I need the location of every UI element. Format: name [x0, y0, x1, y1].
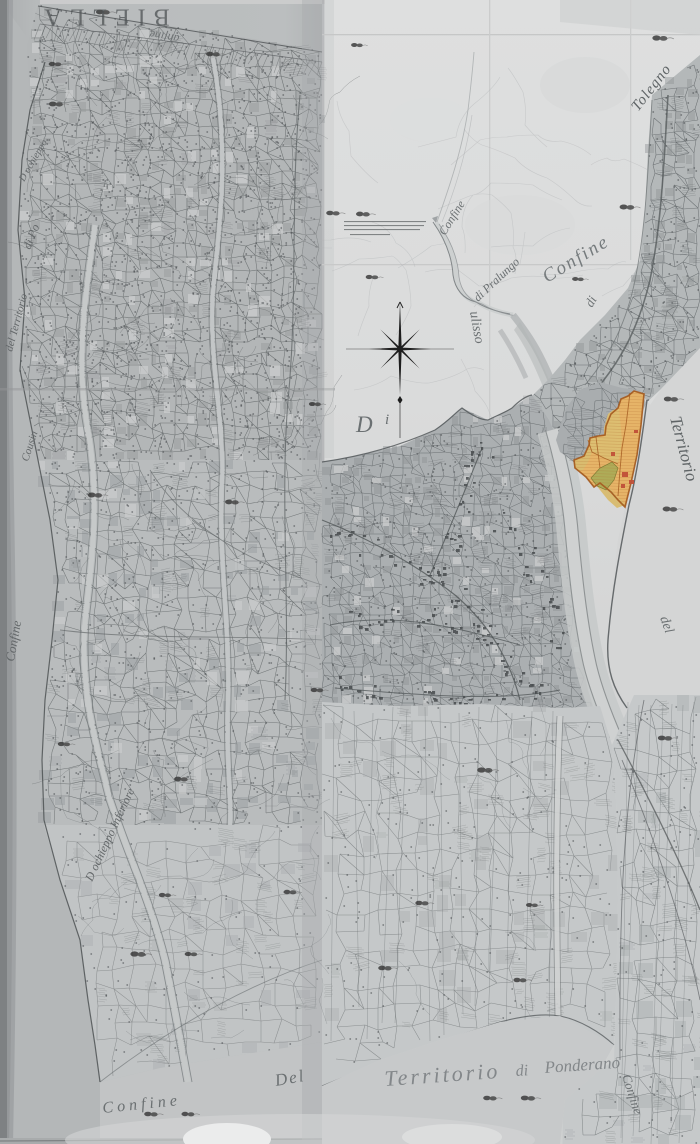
svg-text:BIELLA: BIELLA	[36, 3, 169, 29]
svg-text:D: D	[355, 412, 373, 437]
svg-text:di: di	[515, 1062, 529, 1080]
svg-text:i: i	[385, 412, 389, 428]
